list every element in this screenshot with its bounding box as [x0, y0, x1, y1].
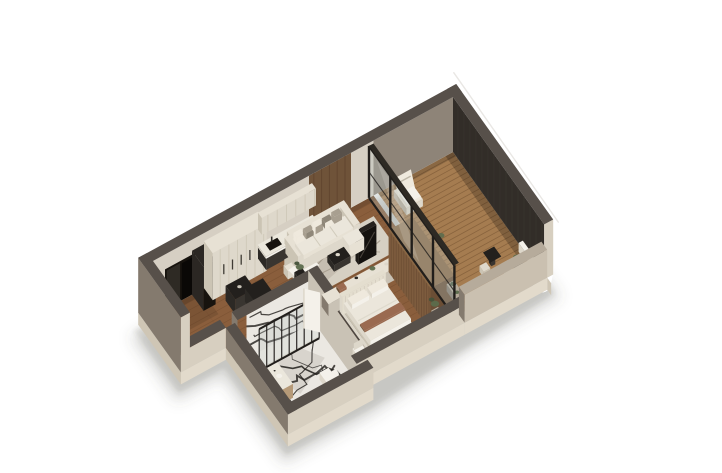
- bathroom-door-leaf: [304, 289, 320, 333]
- coffee-table-bowl: [336, 253, 340, 256]
- console-bowl: [384, 263, 388, 266]
- vanity-faucet: [274, 370, 276, 371]
- bedroom-plant-foliage2: [429, 298, 435, 302]
- side-plant-foliage2: [294, 261, 299, 265]
- console-plant: [369, 266, 375, 270]
- entry-doorway-deep: [182, 257, 193, 300]
- apartment-3d-floorplan: [0, 0, 722, 473]
- toilet-seat: [323, 371, 331, 377]
- bedroom-plant-foliage: [431, 301, 439, 307]
- bed-headboard-west: [340, 293, 343, 315]
- vanity-basin: [276, 374, 282, 378]
- console-vase: [354, 277, 358, 280]
- island-bowl: [237, 285, 241, 288]
- west-wall-end-face: [181, 313, 190, 373]
- floorplan-stage: [0, 0, 722, 473]
